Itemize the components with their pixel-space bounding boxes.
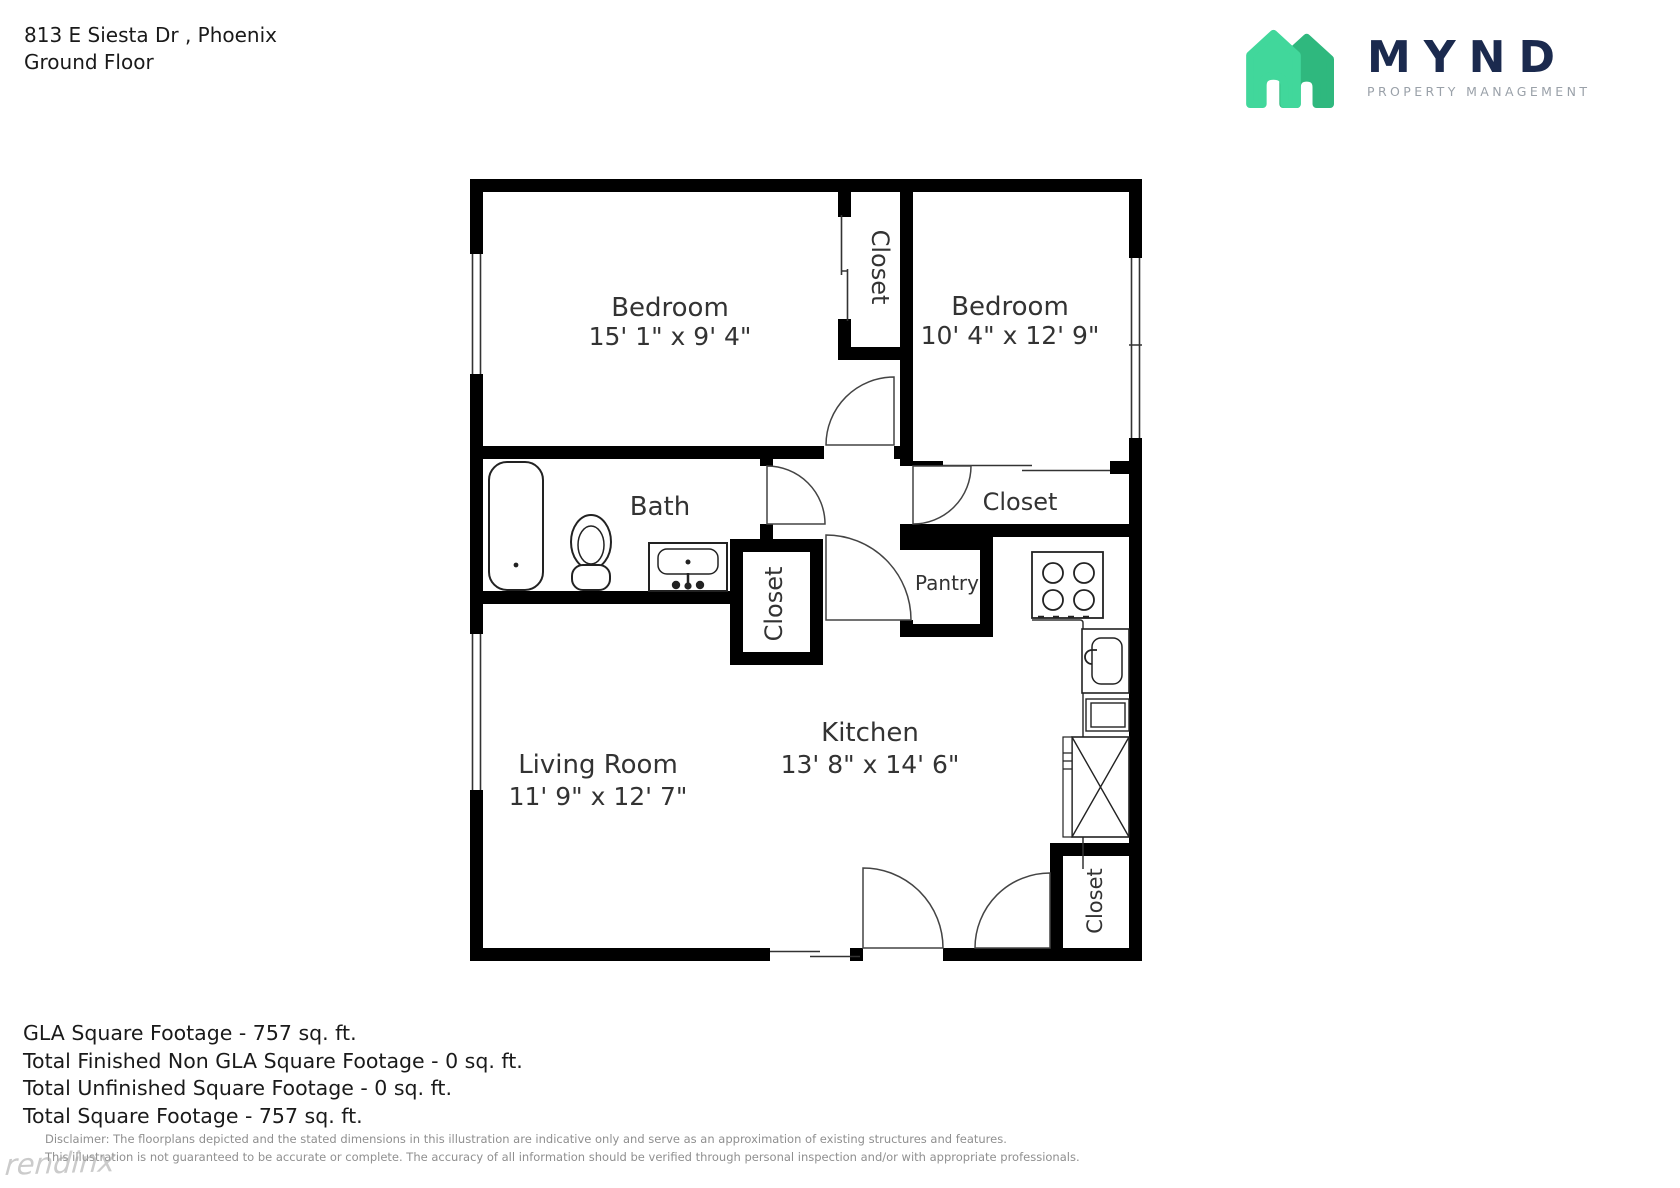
vanity-sink-icon	[649, 543, 727, 591]
gla-square-footage: GLA Square Footage - 757 sq. ft.	[23, 1020, 523, 1048]
kitchen-sink-icon	[1082, 629, 1129, 693]
square-footage-summary: GLA Square Footage - 757 sq. ft. Total F…	[23, 1020, 523, 1130]
non-gla-square-footage: Total Finished Non GLA Square Footage - …	[23, 1048, 523, 1076]
bedroom1-dims: 15' 1" x 9' 4"	[589, 322, 752, 351]
logo-tagline: PROPERTY MANAGEMENT	[1367, 84, 1590, 99]
mynd-logo: MYND PROPERTY MANAGEMENT	[1243, 26, 1590, 108]
toilet-icon	[571, 515, 611, 590]
floorplan: Bedroom 15' 1" x 9' 4" Bedroom 10' 4" x …	[470, 179, 1142, 961]
living-room-label: Living Room	[518, 750, 678, 780]
bathtub-icon	[489, 462, 543, 590]
kitchen-label: Kitchen	[821, 718, 919, 748]
closet-bedroom2-label: Closet	[983, 488, 1058, 516]
bath-label: Bath	[630, 492, 690, 522]
header-address-block: 813 E Siesta Dr , Phoenix Ground Floor	[24, 22, 277, 76]
closet-hall-label: Closet	[760, 567, 788, 642]
cabinet-icon	[1086, 699, 1129, 731]
crossed-box-appliance-icon	[1063, 737, 1129, 837]
total-square-footage: Total Square Footage - 757 sq. ft.	[23, 1103, 523, 1131]
stove-icon	[1032, 552, 1103, 618]
mynd-houses-icon	[1243, 26, 1343, 108]
living-room-dims: 11' 9" x 12' 7"	[509, 782, 688, 811]
bedroom1-label: Bedroom	[611, 293, 729, 323]
pantry-label: Pantry	[915, 571, 979, 595]
closet-bedrooms-label: Closet	[866, 230, 894, 305]
logo-wordmark: MYND	[1367, 35, 1590, 81]
watermark: rendinx	[4, 1144, 116, 1182]
floor-line: Ground Floor	[24, 49, 277, 76]
kitchen-dims: 13' 8" x 14' 6"	[781, 750, 960, 779]
address-line: 813 E Siesta Dr , Phoenix	[24, 22, 277, 49]
bedroom2-dims: 10' 4" x 12' 9"	[921, 321, 1100, 350]
bedroom2-label: Bedroom	[951, 292, 1069, 322]
unfinished-square-footage: Total Unfinished Square Footage - 0 sq. …	[23, 1075, 523, 1103]
closet-entry-label: Closet	[1083, 868, 1107, 933]
disclaimer-line-1: Disclaimer: The floorplans depicted and …	[45, 1130, 1080, 1148]
disclaimer: Disclaimer: The floorplans depicted and …	[45, 1130, 1080, 1166]
disclaimer-line-2: This illustration is not guaranteed to b…	[45, 1148, 1080, 1166]
